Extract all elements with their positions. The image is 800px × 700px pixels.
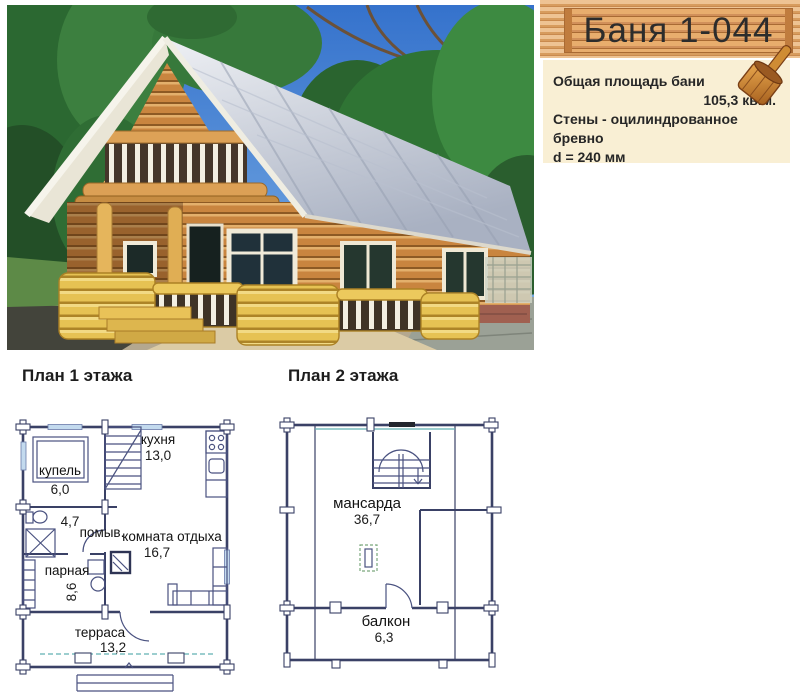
- plan2-chimney: [360, 545, 377, 571]
- svg-text:4,7: 4,7: [61, 514, 80, 529]
- floor-plan-1: купель 6,0 кухня 13,0 4,7 помыв. парная …: [10, 402, 248, 698]
- svg-text:мансарда: мансарда: [333, 495, 402, 512]
- front-window: [229, 231, 295, 291]
- svg-text:кухня: кухня: [141, 432, 175, 447]
- info-walls-line: Стены - оцилиндрованное бревно: [553, 110, 782, 148]
- small-window: [125, 243, 155, 275]
- plan2-room-labels: мансарда 36,7 балкон 6,3: [333, 495, 410, 645]
- lattice-fence: [485, 257, 532, 303]
- svg-text:комната отдыха: комната отдыха: [122, 529, 222, 544]
- plan2-balcony-door: [386, 584, 412, 608]
- info-diameter-line: d = 240 мм: [553, 148, 782, 167]
- svg-text:36,7: 36,7: [354, 512, 380, 527]
- plan1-room-labels: купель 6,0 кухня 13,0 4,7 помыв. парная …: [39, 432, 222, 655]
- svg-text:16,7: 16,7: [144, 545, 170, 560]
- svg-text:помыв.: помыв.: [80, 525, 125, 540]
- svg-text:купель: купель: [39, 463, 81, 478]
- svg-text:терраса: терраса: [75, 625, 126, 640]
- plan2-stairs: [373, 432, 430, 488]
- plan1-kitchen-fixtures: [206, 431, 227, 497]
- plan2-title: План 2 этажа: [288, 366, 398, 386]
- side-window-2: [444, 250, 486, 298]
- house-photo: [7, 5, 534, 350]
- svg-text:8,6: 8,6: [64, 583, 79, 602]
- catalog-page: Баня 1-044 Общая площадь бани 105,3 кв.м…: [0, 0, 800, 700]
- side-window-1: [342, 243, 394, 295]
- floor-plan-2: мансарда 36,7 балкон 6,3: [258, 398, 524, 690]
- svg-text:балкон: балкон: [362, 613, 411, 630]
- svg-text:6,0: 6,0: [51, 482, 70, 497]
- plan1-sofa: [168, 548, 227, 605]
- sauna-ladle-icon: [733, 38, 795, 110]
- svg-text:6,3: 6,3: [375, 630, 394, 645]
- svg-text:13,0: 13,0: [145, 448, 171, 463]
- plan1-stairs: [105, 427, 141, 489]
- plan1-stove: [111, 552, 130, 573]
- plan1-title: План 1 этажа: [22, 366, 132, 386]
- svg-text:парная: парная: [45, 563, 90, 578]
- svg-text:13,2: 13,2: [100, 640, 126, 655]
